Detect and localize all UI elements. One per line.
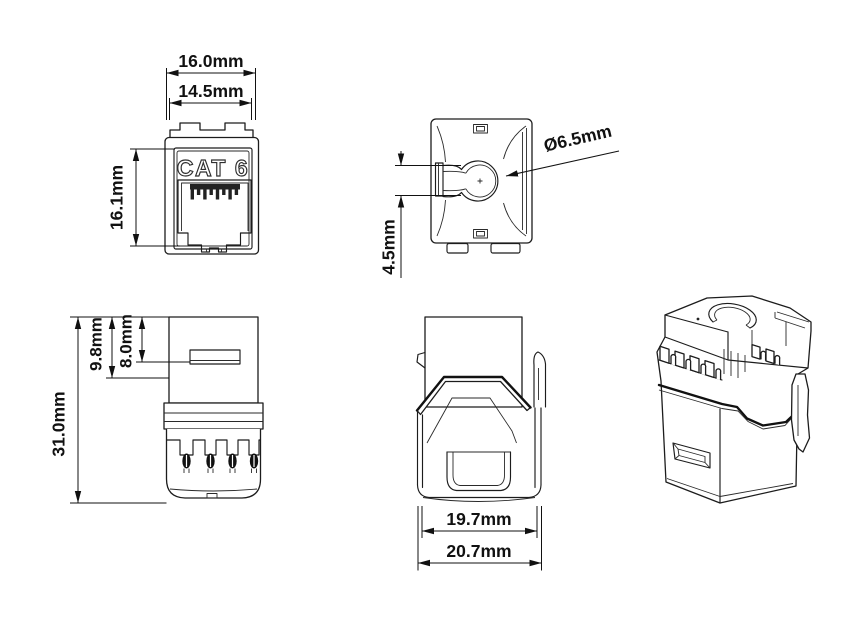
dim-front-width-inner: 14.5mm [178, 81, 243, 101]
dim-side-width-outer: 20.7mm [446, 541, 511, 561]
dim-hole-offset: 4.5mm [379, 219, 399, 274]
side-rear-panel [425, 317, 522, 407]
side-bottom [418, 485, 542, 498]
iso-latch [792, 374, 810, 452]
view-isometric [657, 296, 811, 503]
side-cavity-inner [447, 452, 511, 486]
dim-front-height: 16.1mm [107, 165, 127, 230]
view-rear: 31.0mm 9.8mm 8.0mm [49, 314, 263, 503]
technical-drawing-sheet: CAT 6 16.0mm 14.5mm 16.1mm [0, 0, 868, 620]
top-foot-right [491, 244, 520, 254]
dim-rear-depth-b: 8.0mm [116, 314, 135, 368]
top-foot-left [447, 244, 468, 254]
dim-total-height: 31.0mm [49, 391, 69, 456]
side-outer-walls [418, 408, 542, 488]
view-front: CAT 6 16.0mm 14.5mm 16.1mm [107, 51, 259, 254]
dim-rear-depth-a: 9.8mm [86, 317, 105, 371]
view-top: 4.5mm Ø6.5mm [379, 119, 619, 278]
dim-hole-diameter: Ø6.5mm [542, 121, 614, 156]
side-left-tab [417, 353, 425, 369]
view-side: 19.7mm 20.7mm [417, 317, 546, 571]
rear-collar-band [164, 403, 263, 429]
dim-side-width-inner: 19.7mm [446, 509, 511, 529]
side-dimensions: 19.7mm 20.7mm [418, 506, 542, 571]
keystone-jack-drawing: CAT 6 16.0mm 14.5mm 16.1mm [0, 0, 868, 620]
side-bottom-bulge [423, 498, 535, 502]
cat6-marking: CAT 6 [177, 155, 249, 181]
iso-silhouette [657, 296, 811, 503]
iso-cap-dot [697, 318, 700, 321]
side-latch-spring [534, 352, 546, 407]
rear-top-section [169, 317, 258, 403]
dim-front-width-outer: 16.0mm [178, 51, 243, 71]
